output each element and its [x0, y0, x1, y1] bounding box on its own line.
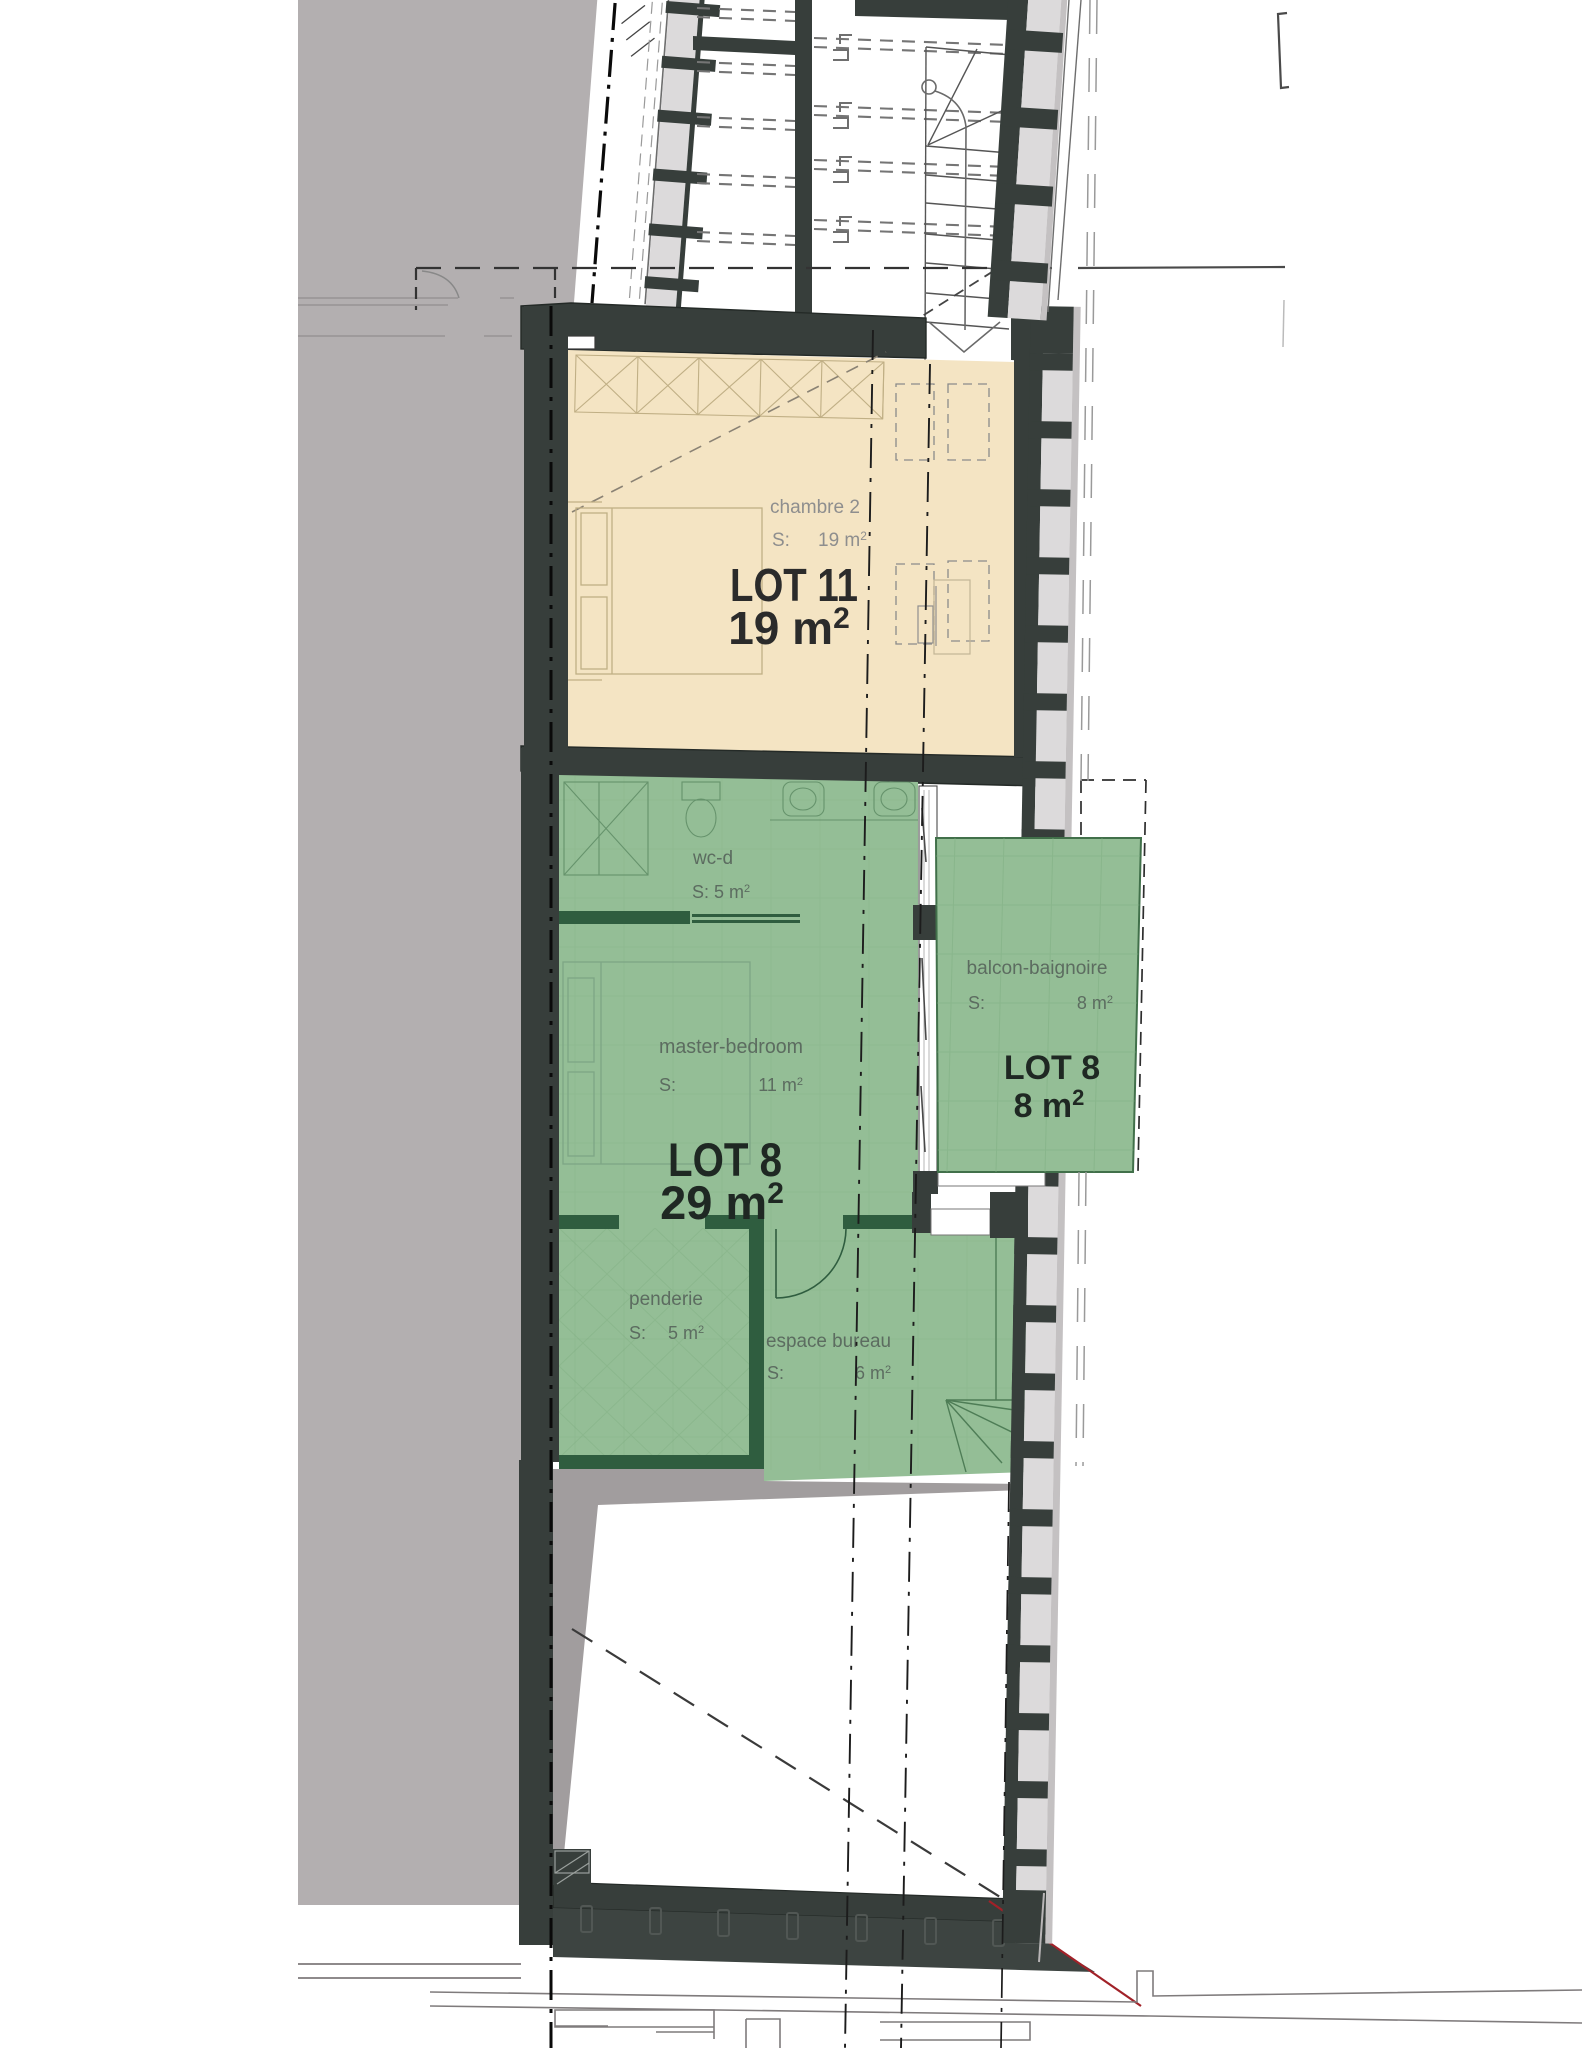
svg-text:master-bedroom: master-bedroom — [659, 1036, 803, 1058]
svg-text:S:: S: — [659, 1075, 676, 1095]
svg-text:S:: S: — [629, 1323, 646, 1343]
svg-text:wc-d: wc-d — [692, 848, 733, 869]
svg-text:balcon-baignoire: balcon-baignoire — [967, 958, 1108, 979]
svg-text:penderie: penderie — [629, 1289, 703, 1310]
svg-text:S:: S: — [772, 530, 790, 551]
svg-text:S:: S: — [767, 1363, 784, 1383]
svg-text:S: 5 m2: S: 5 m2 — [692, 882, 750, 902]
svg-text:19 m2: 19 m2 — [818, 529, 867, 551]
svg-text:29 m2: 29 m2 — [660, 1176, 784, 1229]
svg-text:S:: S: — [968, 993, 985, 1013]
svg-text:LOT 8: LOT 8 — [1004, 1049, 1100, 1087]
svg-text:11 m2: 11 m2 — [758, 1075, 803, 1095]
svg-text:chambre 2: chambre 2 — [770, 497, 860, 518]
svg-text:19 m2: 19 m2 — [728, 602, 850, 654]
svg-text:espace bureau: espace bureau — [766, 1331, 891, 1352]
